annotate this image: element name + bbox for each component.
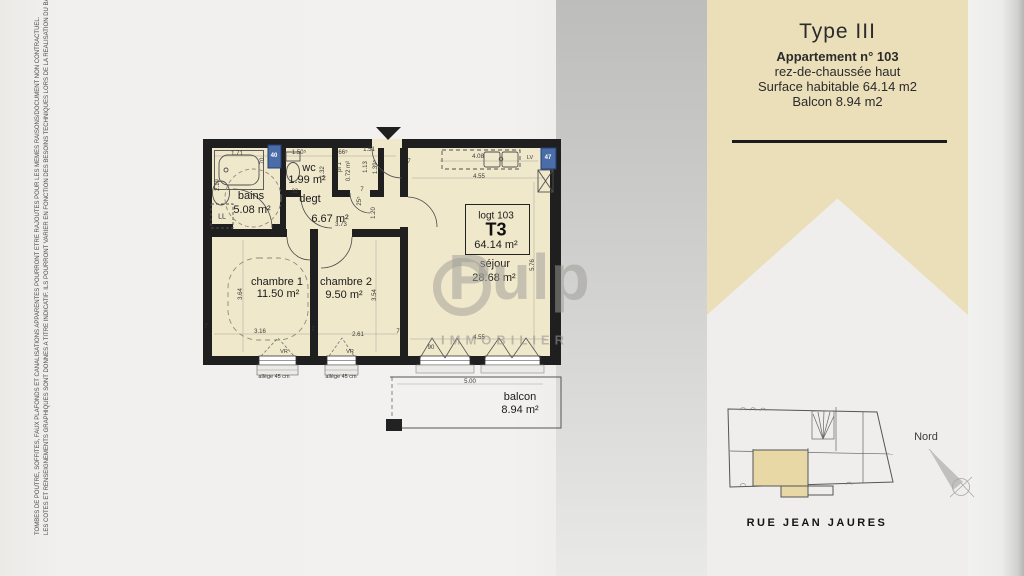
dim-balcony: 5.00 <box>464 379 476 385</box>
floorplan-sheet: Type III Appartement n° 103 rez-de-chaus… <box>0 0 1024 576</box>
label-dishwasher: LV <box>527 155 533 161</box>
dim: 66⁵ <box>338 150 347 156</box>
dim-placard: pl 1 <box>337 162 343 172</box>
label-sill-height: allège 45 cm <box>325 374 356 380</box>
dim: 5.76 <box>530 259 536 271</box>
room-area-bains: 5.08 m² <box>233 204 270 216</box>
dim: 25⁵ <box>357 196 363 205</box>
room-label-wc: wc <box>302 162 315 174</box>
window-swing-triangles <box>420 338 540 358</box>
dim: 3.54 <box>372 289 378 301</box>
sink-bowl-left <box>484 152 500 167</box>
dim: 1.51 <box>363 147 375 153</box>
room-label-balcon: balcon <box>504 391 536 403</box>
street-name: RUE JEAN JAURES <box>747 517 888 529</box>
dim: 2.61 <box>352 332 364 338</box>
neighbor-balcony <box>808 486 833 495</box>
dim-door-width: 90 <box>428 345 435 351</box>
sink-bowl-right <box>502 152 518 167</box>
window-number: 47 <box>545 155 552 161</box>
unit-surface: 64.14 m² <box>474 239 517 251</box>
entrance-arrow-icon <box>376 127 401 140</box>
label-shutter: VR <box>280 349 288 355</box>
site-plan <box>728 407 893 497</box>
dim: 1.32 <box>320 166 326 178</box>
dim: 3.16 <box>254 329 266 335</box>
dim: 4.08 <box>472 154 484 160</box>
dim: 7 <box>311 327 314 333</box>
highlighted-balcony <box>781 486 808 497</box>
room-label-chambre1: chambre 1 <box>251 276 303 288</box>
dim: 1.39⁵ <box>373 160 379 174</box>
room-area-chambre2: 9.50 m² <box>325 289 362 301</box>
label-sill-height: allège 45 cm <box>258 374 289 380</box>
highlighted-unit <box>753 450 808 486</box>
dim: 4.55 <box>473 335 485 341</box>
dim: 1.20 <box>371 207 377 219</box>
dim: 1.13 <box>363 161 369 173</box>
floor-plan-svg <box>0 0 1024 576</box>
room-area-chambre1: 11.50 m² <box>257 288 300 300</box>
dim: 7 <box>407 159 410 165</box>
dim: 3.73 <box>335 222 347 228</box>
dim: 2.19 <box>215 179 221 191</box>
room-label-sejour: séjour <box>480 258 510 270</box>
compass <box>929 449 974 497</box>
dim: 3.64 <box>238 288 244 300</box>
north-label: Nord <box>914 431 938 443</box>
label-washing-machine: LL <box>218 214 226 221</box>
dim: 1.71 <box>231 151 243 157</box>
label-shutter: VR <box>346 349 354 355</box>
dim: 7 <box>360 187 363 193</box>
dim: 4.55 <box>473 174 485 180</box>
dim: 70 <box>260 158 266 165</box>
balcony-post <box>386 419 402 431</box>
dim-placard-area: 0.72 m² <box>346 161 352 181</box>
dim: 7 <box>396 329 399 335</box>
dim: 32 <box>292 189 299 195</box>
unit-type: T3 <box>485 220 506 241</box>
dim: 1.50⁵ <box>292 150 306 156</box>
room-label-chambre2: chambre 2 <box>320 276 372 288</box>
room-area-sejour: 28.68 m² <box>472 272 515 284</box>
bathtub-inner <box>219 155 259 185</box>
window-number: 40 <box>271 153 278 159</box>
compass-needle <box>929 449 963 490</box>
room-label-bains: bains <box>238 190 264 202</box>
room-area-balcon: 8.94 m² <box>501 404 538 416</box>
room-label-degt: degt <box>299 193 320 205</box>
bathtub-drain <box>224 168 228 172</box>
dim: 7 <box>204 324 207 330</box>
